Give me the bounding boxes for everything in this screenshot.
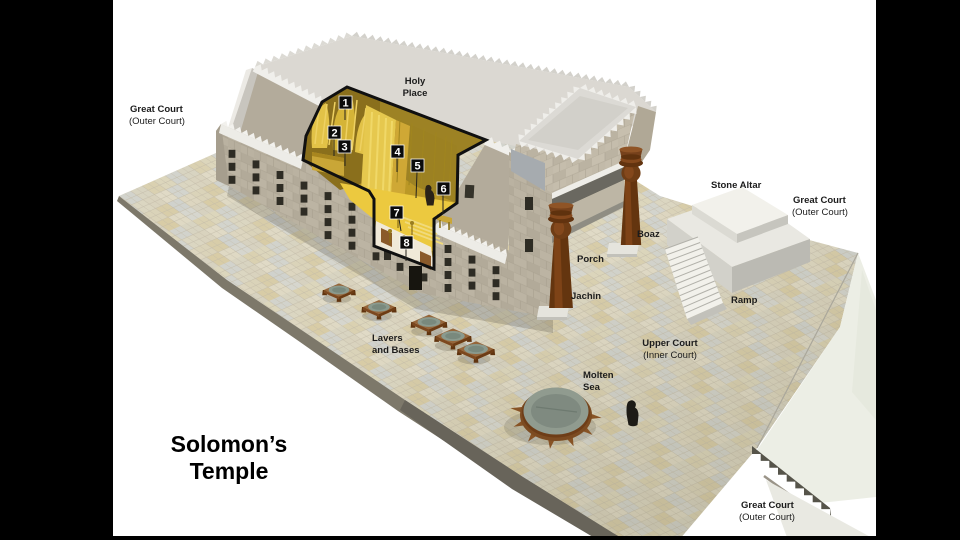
svg-text:Upper Court: Upper Court — [642, 338, 698, 349]
svg-text:Temple: Temple — [190, 458, 269, 484]
svg-text:Molten: Molten — [583, 370, 614, 381]
svg-text:7: 7 — [393, 208, 399, 220]
svg-text:Lavers: Lavers — [372, 333, 403, 344]
svg-text:Ramp: Ramp — [731, 295, 758, 306]
svg-text:Place: Place — [403, 88, 428, 99]
svg-text:Boaz: Boaz — [637, 229, 660, 240]
svg-text:Solomon’s: Solomon’s — [171, 431, 288, 457]
svg-text:(Inner Court): (Inner Court) — [643, 350, 697, 361]
svg-text:3: 3 — [341, 142, 347, 154]
svg-text:1: 1 — [342, 98, 348, 110]
svg-text:(Outer Court): (Outer Court) — [792, 207, 848, 218]
svg-text:(Outer Court): (Outer Court) — [739, 512, 795, 523]
svg-text:Jachin: Jachin — [571, 291, 601, 302]
svg-text:4: 4 — [394, 147, 401, 159]
svg-text:2: 2 — [331, 128, 337, 140]
svg-text:Great Court: Great Court — [130, 104, 184, 115]
svg-text:Stone Altar: Stone Altar — [711, 180, 762, 191]
svg-text:and Bases: and Bases — [372, 345, 420, 356]
svg-text:Great Court: Great Court — [741, 500, 795, 511]
svg-text:8: 8 — [403, 238, 409, 250]
svg-text:Porch: Porch — [577, 254, 604, 265]
svg-text:6: 6 — [440, 184, 446, 196]
svg-text:Great Court: Great Court — [793, 195, 847, 206]
svg-text:Holy: Holy — [405, 76, 426, 87]
svg-text:5: 5 — [414, 161, 420, 173]
svg-text:(Outer Court): (Outer Court) — [129, 116, 185, 127]
svg-text:Sea: Sea — [583, 382, 601, 393]
